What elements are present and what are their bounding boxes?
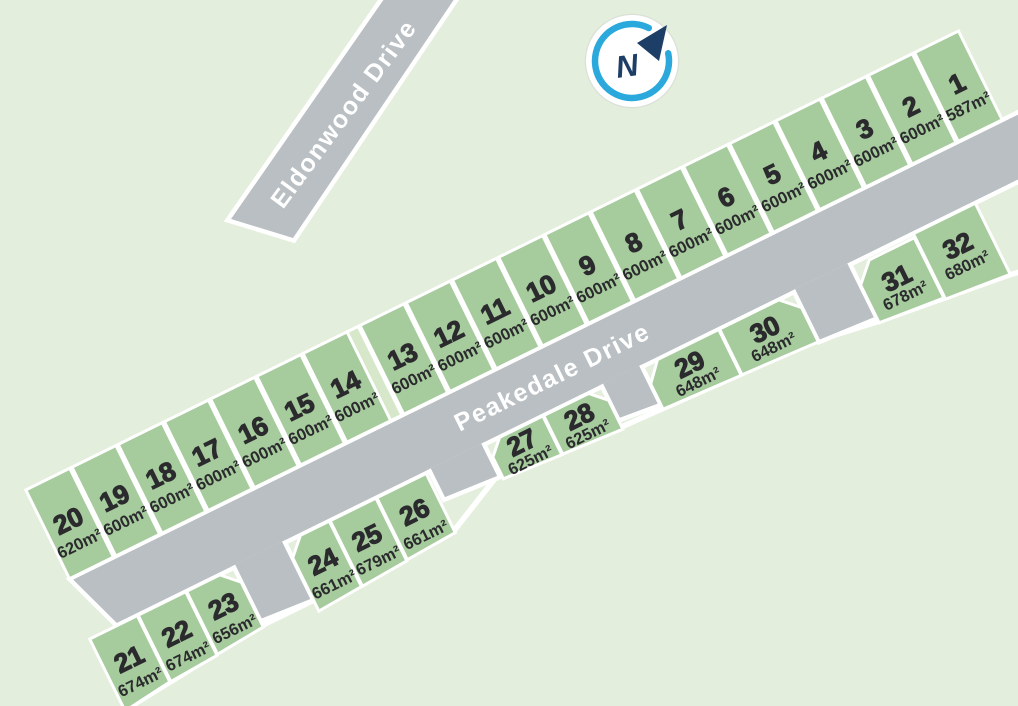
compass: N bbox=[586, 15, 679, 108]
estate-map: Eldonwood Drive Peakedale Drive 1587m²26… bbox=[0, 0, 1018, 706]
subdivision-plan: Eldonwood Drive Peakedale Drive 1587m²26… bbox=[0, 0, 1018, 706]
